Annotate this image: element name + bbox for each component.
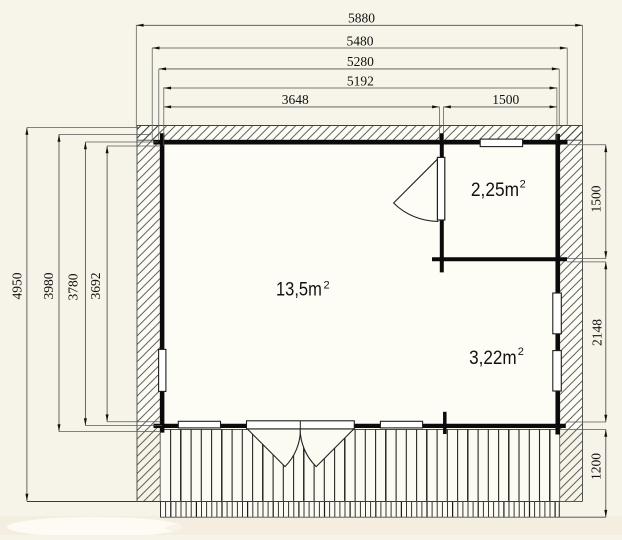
svg-text:5880: 5880	[348, 11, 375, 26]
svg-text:3780: 3780	[66, 273, 81, 300]
svg-text:3692: 3692	[88, 273, 103, 300]
svg-text:2: 2	[520, 179, 526, 191]
svg-text:4950: 4950	[10, 272, 25, 299]
svg-text:1200: 1200	[588, 453, 603, 480]
svg-text:2,25m: 2,25m	[471, 179, 519, 201]
svg-text:3,22m: 3,22m	[469, 347, 517, 369]
svg-text:3648: 3648	[282, 92, 309, 107]
svg-text:2: 2	[518, 346, 524, 358]
svg-text:13,5m: 13,5m	[276, 279, 322, 301]
svg-text:5280: 5280	[347, 54, 374, 69]
svg-text:3980: 3980	[41, 272, 56, 299]
svg-text:2148: 2148	[590, 319, 605, 346]
svg-text:5192: 5192	[347, 73, 374, 88]
svg-text:2: 2	[324, 280, 330, 292]
svg-text:1500: 1500	[589, 185, 604, 212]
svg-text:1500: 1500	[492, 92, 519, 107]
svg-text:5480: 5480	[347, 33, 374, 48]
